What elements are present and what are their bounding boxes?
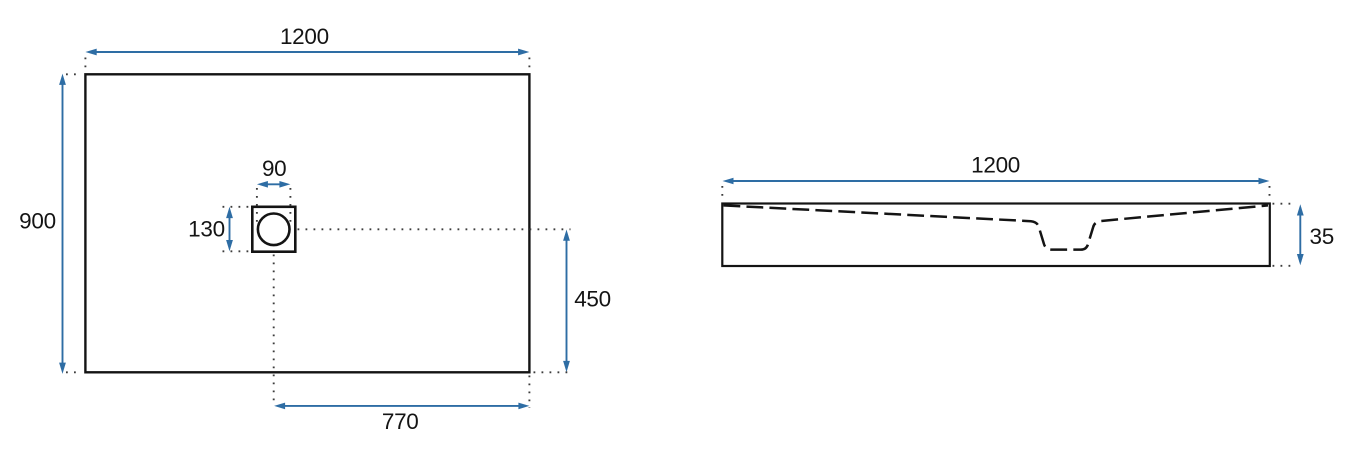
svg-text:35: 35 — [1310, 224, 1334, 249]
svg-text:130: 130 — [188, 217, 225, 242]
svg-text:450: 450 — [574, 286, 611, 311]
svg-text:90: 90 — [262, 156, 286, 181]
svg-text:770: 770 — [382, 409, 419, 434]
svg-text:1200: 1200 — [971, 152, 1020, 177]
svg-text:1200: 1200 — [280, 24, 329, 49]
svg-text:900: 900 — [19, 209, 56, 234]
